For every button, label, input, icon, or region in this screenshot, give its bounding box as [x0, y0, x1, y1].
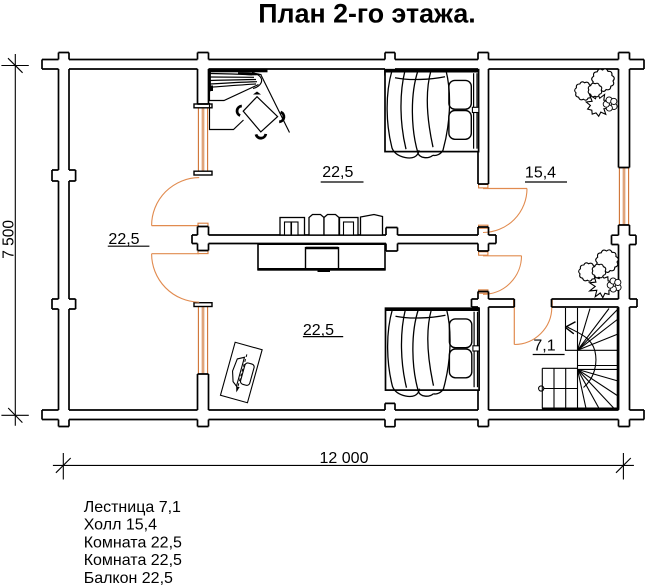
svg-text:Комната 22,5: Комната 22,5: [84, 552, 182, 569]
svg-text:22,5: 22,5: [303, 322, 334, 339]
svg-text:12 000: 12 000: [320, 450, 369, 467]
svg-text:7 500: 7 500: [1, 220, 18, 259]
svg-text:Холл 15,4: Холл 15,4: [84, 517, 157, 534]
svg-text:22,5: 22,5: [108, 231, 139, 248]
svg-text:7,1: 7,1: [533, 337, 555, 354]
svg-text:План 2-го этажа.: План 2-го этажа.: [258, 0, 475, 28]
svg-text:15,4: 15,4: [525, 165, 556, 182]
svg-text:22,5: 22,5: [322, 164, 353, 181]
svg-text:Балкон 22,5: Балкон 22,5: [84, 570, 173, 587]
svg-text:Лестница 7,1: Лестница 7,1: [84, 499, 181, 516]
svg-text:Комната 22,5: Комната 22,5: [84, 534, 182, 551]
